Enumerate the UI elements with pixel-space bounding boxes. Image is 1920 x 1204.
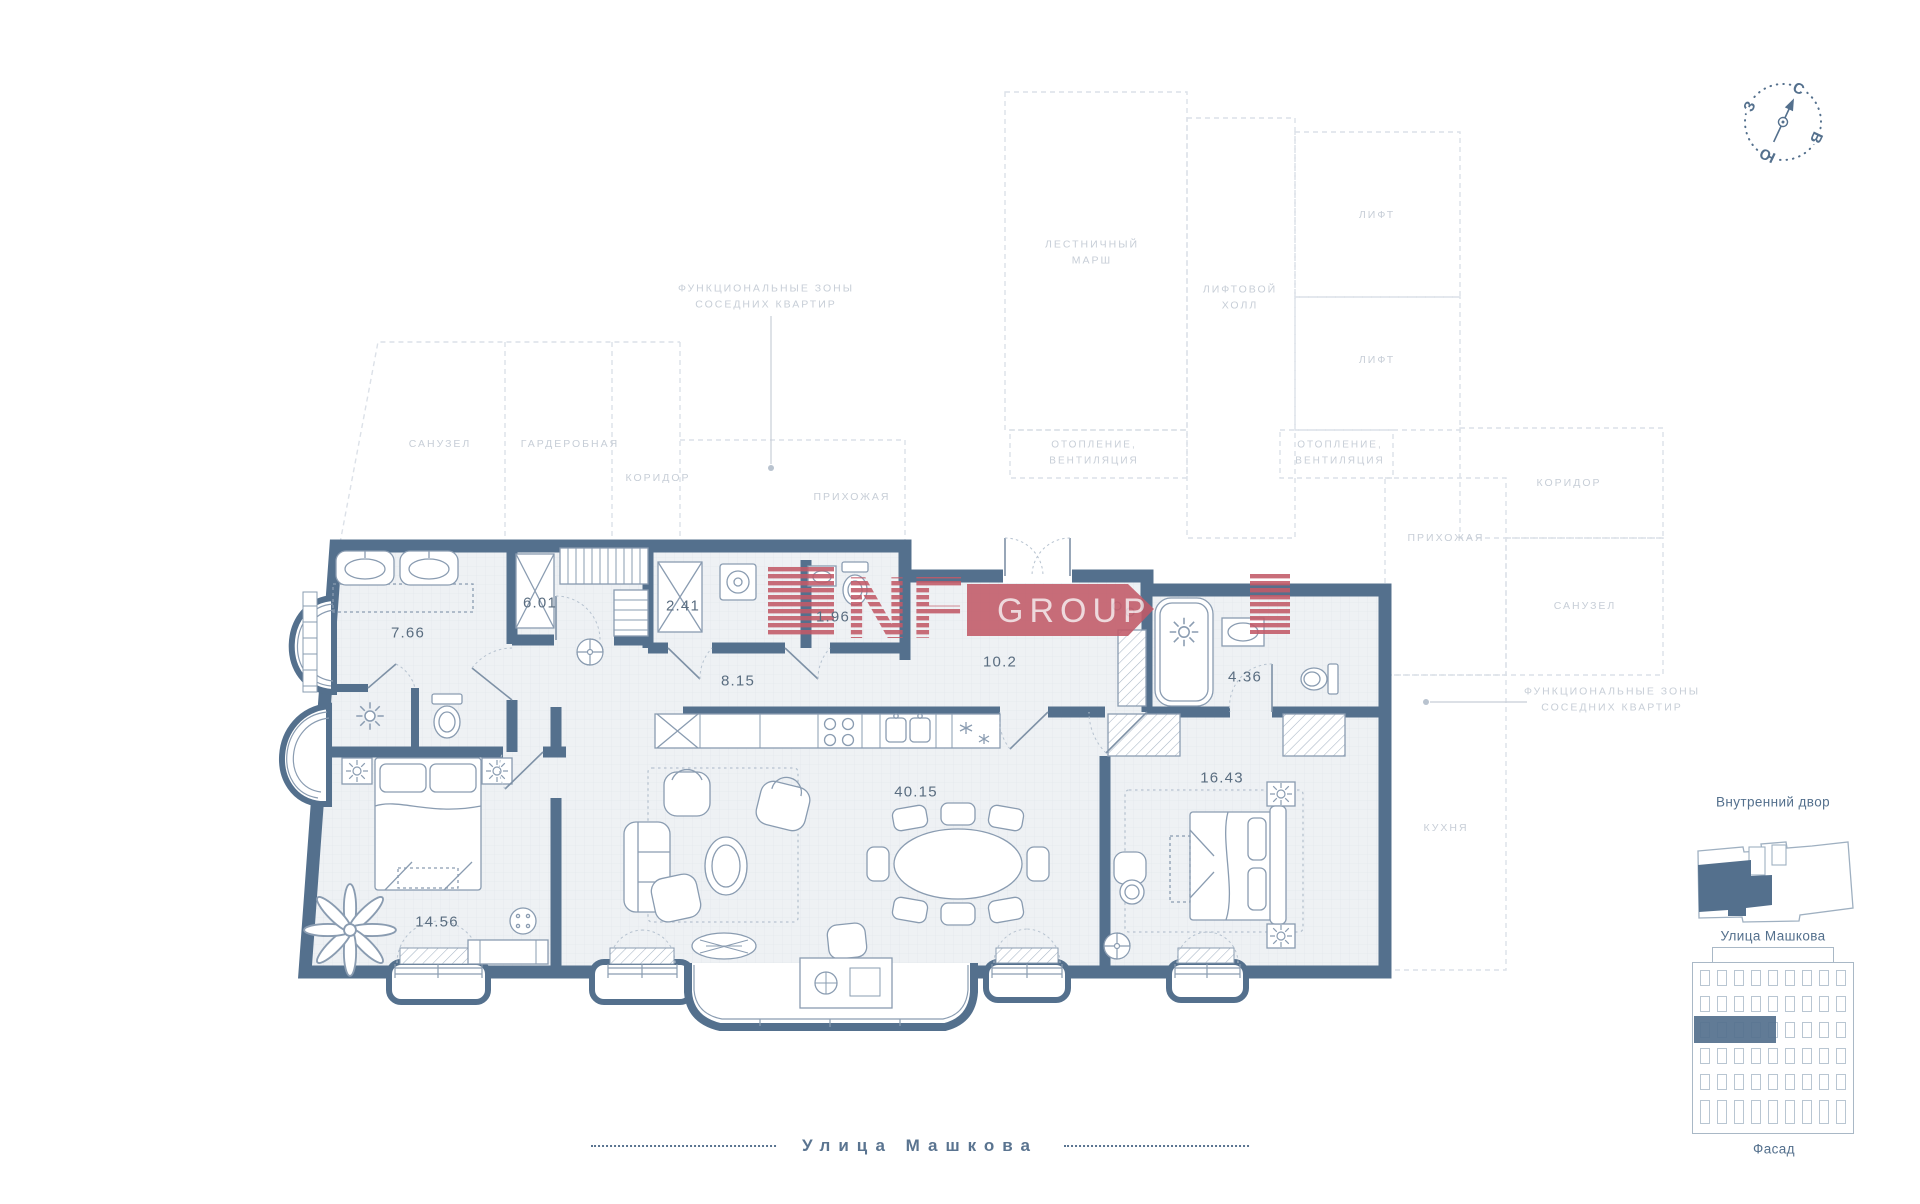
compass-east: В	[1806, 129, 1826, 146]
zone-label-lift-2: ЛИФТ	[1359, 352, 1395, 368]
facade-window	[1819, 996, 1829, 1012]
facade-window	[1700, 1100, 1710, 1124]
bedside-lamp-icon	[1270, 925, 1292, 947]
room-area-living-kitchen: 40.15	[894, 784, 938, 801]
compass: С В Ю З	[1723, 62, 1843, 182]
facade-window	[1836, 1048, 1846, 1064]
plant-icon	[304, 884, 396, 976]
room-area-corridor: 8.15	[721, 673, 755, 690]
facade-window	[1768, 1100, 1778, 1124]
room-area-wc: 1.96	[816, 609, 850, 626]
facade-window	[1802, 1074, 1812, 1090]
facade-window	[1802, 996, 1812, 1012]
logo-nf-text: NF	[845, 558, 966, 657]
zone-label-corridor-left: КОРИДОР	[626, 470, 691, 486]
facade-window	[1785, 1100, 1795, 1124]
street-dotted-line-left	[591, 1145, 776, 1147]
facade-window	[1819, 970, 1829, 986]
dining-set	[867, 803, 1049, 925]
facade-window	[1768, 1074, 1778, 1090]
facade-window	[1717, 970, 1727, 986]
room-area-hallway: 10.2	[983, 654, 1017, 671]
zone-label-lift-1: ЛИФТ	[1359, 207, 1395, 223]
street-dotted-line-right	[1064, 1145, 1249, 1147]
facade-window	[1717, 1048, 1727, 1064]
minimap-street-label: Улица Машкова	[1720, 929, 1825, 944]
facade-window	[1802, 1048, 1812, 1064]
room-area-bedroom-second: 16.43	[1200, 770, 1244, 787]
street-name: Улица Машкова	[802, 1136, 1038, 1156]
room-area-bedroom-main: 14.56	[415, 914, 459, 931]
zone-label-heating-2: ОТОПЛЕНИЕ, ВЕНТИЛЯЦИЯ	[1295, 438, 1384, 469]
facade-window	[1700, 1048, 1710, 1064]
facade-window	[1751, 996, 1761, 1012]
zone-label-bathroom-right: САНУЗЕЛ	[1554, 598, 1617, 614]
facade-window	[1836, 970, 1846, 986]
facade-window	[1802, 1100, 1812, 1124]
facade-setback	[1712, 947, 1834, 963]
facade-window	[1836, 1100, 1846, 1124]
logo-stripe-block-left	[768, 566, 834, 636]
facade-window	[1717, 1074, 1727, 1090]
left-bay-2	[282, 706, 329, 804]
compass-west: З	[1740, 99, 1759, 115]
facade-window	[1819, 1074, 1829, 1090]
zone-label-hallway-left: ПРИХОЖАЯ	[814, 489, 891, 505]
zone-label-heating-1: ОТОПЛЕНИЕ, ВЕНТИЛЯЦИЯ	[1049, 438, 1138, 469]
facade-window	[1768, 1048, 1778, 1064]
floor-plan-drawing: NF GROUP С В Ю З	[0, 0, 1920, 1204]
facade-window	[1785, 970, 1795, 986]
facade-window	[1836, 1074, 1846, 1090]
facade-window	[1785, 1022, 1795, 1038]
facade-window	[1819, 1048, 1829, 1064]
facade-window	[1734, 996, 1744, 1012]
compass-arrow-icon	[1785, 97, 1798, 112]
callout-neighbor-zones-right: ФУНКЦИОНАЛЬНЫЕ ЗОНЫ СОСЕДНИХ КВАРТИР	[1482, 684, 1742, 717]
room-area-utility: 2.41	[666, 598, 700, 615]
zone-label-corridor-right: КОРИДОР	[1537, 475, 1602, 491]
facade-window	[1819, 1100, 1829, 1124]
facade-window	[1734, 1100, 1744, 1124]
zone-label-stair: ЛЕСТНИЧНЫЙ МАРШ	[1045, 237, 1139, 270]
zone-label-wardrobe-left: ГАРДЕРОБНАЯ	[521, 436, 619, 452]
bedside-lamp-icon	[1270, 783, 1292, 805]
facade-window	[1785, 1048, 1795, 1064]
facade-floor-highlight	[1694, 1016, 1776, 1043]
bedside-lamp-icon	[346, 760, 368, 782]
facade-window	[1734, 1048, 1744, 1064]
facade-window	[1768, 970, 1778, 986]
ceiling-light-icon	[356, 702, 384, 730]
facade-window	[1700, 970, 1710, 986]
zone-label-bathroom-left: САНУЗЕЛ	[409, 436, 472, 452]
facade-window	[1717, 996, 1727, 1012]
minimap-courtyard-label: Внутренний двор	[1716, 795, 1830, 810]
facade-window	[1802, 970, 1812, 986]
room-area-wardrobe: 6.01	[523, 595, 557, 612]
facade-window	[1836, 1022, 1846, 1038]
facade-window	[1751, 1074, 1761, 1090]
room-area-bathroom-second: 4.36	[1228, 669, 1262, 686]
facade-window	[1751, 970, 1761, 986]
entrance-opening	[1003, 569, 1072, 583]
facade-window	[1751, 1100, 1761, 1124]
facade-window	[1734, 970, 1744, 986]
room-area-bathroom-main: 7.66	[391, 625, 425, 642]
facade-window	[1700, 1074, 1710, 1090]
logo-stripe-block-right	[1250, 572, 1290, 634]
site-plan-map	[1698, 842, 1853, 922]
bedside-lamp-icon	[486, 760, 508, 782]
floor-plan-page: NF GROUP С В Ю З ЛЕСТНИЧНЫЙ МАРШ ЛИФТОВО…	[0, 0, 1920, 1204]
fan-icon	[1104, 933, 1130, 959]
ceiling-light-icon	[1170, 618, 1199, 647]
facade-window	[1785, 1074, 1795, 1090]
facade-window	[1700, 996, 1710, 1012]
zone-label-lift-hall: ЛИФТОВОЙ ХОЛЛ	[1203, 282, 1277, 315]
facade-window	[1836, 996, 1846, 1012]
zone-label-hallway-right: ПРИХОЖАЯ	[1408, 530, 1485, 546]
facade-window	[1751, 1048, 1761, 1064]
facade-window	[1785, 996, 1795, 1012]
zone-label-kitchen: КУХНЯ	[1423, 820, 1468, 836]
compass-south: Ю	[1757, 144, 1778, 166]
facade-window	[1802, 1022, 1812, 1038]
kitchen-counter	[655, 714, 1000, 748]
facade-window	[1734, 1074, 1744, 1090]
facade-window	[1819, 1022, 1829, 1038]
facade-window	[1768, 996, 1778, 1012]
minimap-facade-label: Фасад	[1753, 1142, 1795, 1157]
compass-north: С	[1790, 79, 1807, 99]
fan-icon	[577, 639, 603, 665]
logo-group-text: GROUP	[997, 592, 1152, 630]
callout-neighbor-zones-left: ФУНКЦИОНАЛЬНЫЕ ЗОНЫ СОСЕДНИХ КВАРТИР	[636, 281, 896, 314]
facade-window	[1717, 1100, 1727, 1124]
street-label: Улица Машкова	[591, 1136, 1249, 1156]
